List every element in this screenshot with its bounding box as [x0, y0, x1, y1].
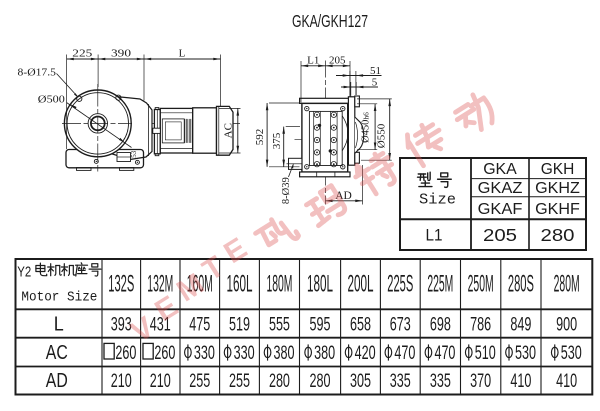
svg-text:900: 900 [556, 313, 577, 335]
svg-text:280: 280 [541, 225, 575, 245]
svg-text:GKAF: GKAF [478, 201, 523, 218]
svg-text:200L: 200L [348, 271, 374, 298]
svg-text:530: 530 [515, 342, 536, 364]
svg-text:335: 335 [430, 370, 451, 392]
svg-text:280S: 280S [508, 271, 534, 298]
svg-text:GKH: GKH [541, 161, 575, 178]
svg-text:380: 380 [314, 342, 335, 364]
svg-text:L1: L1 [426, 226, 443, 245]
svg-text:205: 205 [329, 55, 346, 67]
svg-text:260: 260 [154, 342, 175, 364]
svg-text:410: 410 [510, 370, 531, 392]
svg-text:250M: 250M [468, 271, 494, 298]
svg-text:205: 205 [483, 225, 517, 245]
svg-text:225S: 225S [387, 271, 413, 298]
svg-text:210: 210 [111, 370, 132, 392]
svg-text:GKHZ: GKHZ [535, 180, 580, 197]
svg-text:673: 673 [390, 313, 411, 335]
svg-text:GKA/GKH127: GKA/GKH127 [292, 11, 368, 31]
svg-text:255: 255 [189, 370, 210, 392]
svg-text:255: 255 [229, 370, 250, 392]
svg-text:51: 51 [370, 65, 381, 77]
svg-text:GKAZ: GKAZ [478, 180, 523, 197]
svg-text:410: 410 [556, 370, 577, 392]
svg-text:519: 519 [229, 313, 250, 335]
svg-text:132S: 132S [108, 271, 134, 298]
svg-text:5: 5 [372, 76, 378, 88]
svg-text:Ø450h6: Ø450h6 [361, 112, 372, 143]
svg-text:530: 530 [561, 342, 582, 364]
svg-text:L1: L1 [307, 55, 319, 67]
svg-text:Ø500: Ø500 [38, 95, 65, 106]
svg-text:8-Ø39: 8-Ø39 [281, 177, 292, 204]
svg-text:Ø550: Ø550 [376, 123, 388, 148]
svg-text:849: 849 [510, 313, 531, 335]
svg-text:510: 510 [475, 342, 496, 364]
svg-text:L: L [179, 48, 186, 60]
svg-text:260: 260 [115, 342, 136, 364]
svg-text:390: 390 [111, 48, 132, 60]
svg-text:225M: 225M [427, 271, 453, 298]
svg-text:698: 698 [430, 313, 451, 335]
svg-text:380: 380 [274, 342, 295, 364]
svg-text:AC: AC [46, 342, 68, 364]
svg-text:AD: AD [46, 370, 68, 392]
svg-text:595: 595 [310, 313, 331, 335]
svg-text:420: 420 [355, 342, 376, 364]
svg-text:AC: AC [222, 123, 234, 138]
svg-text:225: 225 [72, 48, 93, 60]
svg-text:180M: 180M [266, 271, 292, 298]
svg-text:160L: 160L [227, 271, 253, 298]
svg-text:Size: Size [419, 192, 456, 209]
svg-text:180L: 180L [307, 271, 333, 298]
svg-text:335: 335 [390, 370, 411, 392]
svg-text:280: 280 [269, 370, 290, 392]
svg-text:470: 470 [434, 342, 455, 364]
svg-text:280: 280 [310, 370, 331, 392]
svg-text:GKA: GKA [483, 161, 517, 178]
svg-text:Motor Size: Motor Size [21, 291, 97, 306]
svg-text:592: 592 [254, 129, 266, 146]
svg-text:8-Ø17.5: 8-Ø17.5 [18, 68, 57, 79]
svg-text:475: 475 [189, 313, 210, 335]
svg-text:53: 53 [130, 150, 138, 158]
svg-text:280M: 280M [554, 271, 580, 298]
svg-text:210: 210 [150, 370, 171, 392]
svg-text:370: 370 [470, 370, 491, 392]
svg-text:L: L [54, 313, 64, 335]
svg-text:330: 330 [234, 342, 255, 364]
svg-text:786: 786 [470, 313, 491, 335]
svg-text:470: 470 [394, 342, 415, 364]
svg-text:375: 375 [271, 132, 283, 149]
svg-text:330: 330 [194, 342, 215, 364]
svg-text:658: 658 [350, 313, 371, 335]
svg-text:Y2: Y2 [17, 265, 31, 281]
svg-text:GKHF: GKHF [535, 201, 580, 218]
svg-text:305: 305 [350, 370, 371, 392]
svg-text:555: 555 [269, 313, 290, 335]
